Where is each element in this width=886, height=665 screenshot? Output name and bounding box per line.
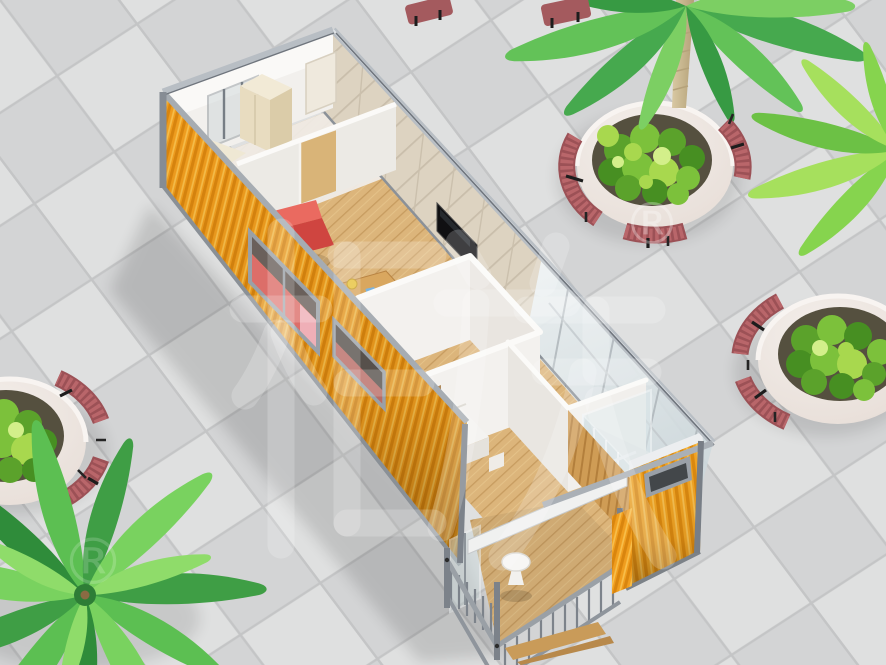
wardrobe	[240, 74, 292, 152]
registered-symbol-faint: ®	[61, 526, 125, 600]
scene: ® ®	[0, 0, 886, 665]
render-canvas: ® ®	[0, 0, 886, 665]
registered-symbol: ®	[623, 190, 681, 258]
planter-right	[740, 296, 886, 424]
